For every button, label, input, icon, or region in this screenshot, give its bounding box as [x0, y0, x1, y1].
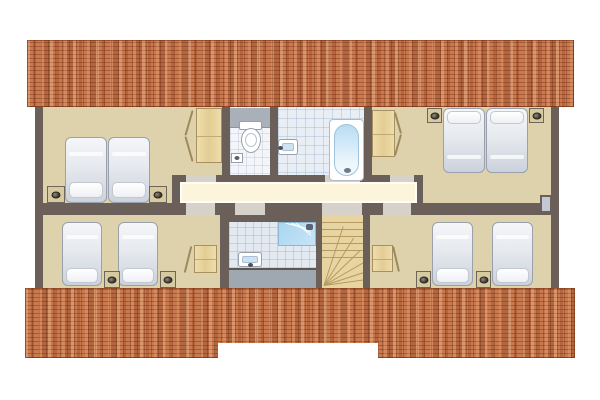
- room-hallway: [180, 182, 417, 203]
- pillow: [436, 268, 469, 283]
- nightstand: [160, 271, 176, 288]
- wardrobe-shelf: [195, 259, 216, 260]
- wardrobe: [194, 245, 217, 273]
- roof-top: [27, 40, 574, 107]
- wardrobe: [372, 245, 393, 272]
- pillow: [69, 182, 103, 198]
- nightstand: [476, 271, 491, 288]
- bed-sheet-fold: [112, 152, 146, 156]
- bathtub-drain: [344, 168, 351, 173]
- shower-head-icon: [306, 224, 313, 230]
- pillow: [112, 182, 146, 198]
- stair-tread: [322, 236, 363, 237]
- floor-plan: [0, 0, 600, 400]
- opening-staircase: [322, 203, 362, 215]
- door-shower-room: [235, 203, 265, 215]
- pillow: [447, 111, 481, 124]
- wardrobe: [196, 108, 222, 163]
- stair-tread: [322, 222, 363, 223]
- washbasin: [278, 139, 298, 155]
- bed-sheet-fold: [69, 152, 103, 156]
- wardrobe-shelf: [197, 136, 221, 137]
- wardrobe-shelf: [373, 134, 394, 135]
- nightstand: [416, 271, 431, 288]
- stair-tread: [322, 257, 363, 258]
- shower-room-ledge: [229, 268, 316, 288]
- bed-sheet-fold: [496, 235, 529, 239]
- bed-sheet-fold: [490, 155, 524, 159]
- nightstand: [47, 186, 65, 203]
- door-bedroom-top-left: [186, 175, 216, 182]
- pillow: [490, 111, 524, 124]
- pillow: [66, 268, 98, 283]
- bed-sheet-fold: [436, 235, 469, 239]
- door-bedroom-bottom-left: [186, 203, 215, 215]
- shower: [278, 222, 316, 246]
- corridor-left-wall: [172, 175, 180, 215]
- stair-winder: [324, 238, 355, 286]
- bathtub: [329, 119, 364, 181]
- flue-box: [540, 195, 552, 213]
- lamp-knob: [532, 112, 541, 119]
- bed-sheet-fold: [122, 235, 154, 239]
- lamp-knob: [52, 191, 61, 198]
- toilet-roll: [235, 156, 240, 160]
- lamp-knob: [479, 276, 488, 283]
- washbasin-bowl: [282, 143, 294, 151]
- lamp-knob: [430, 112, 439, 119]
- nightstand: [529, 108, 544, 123]
- toilet-roll-holder: [231, 153, 243, 163]
- lamp-knob: [154, 191, 163, 198]
- washbasin-bowl: [242, 256, 258, 263]
- toilet-bowl-inner: [245, 133, 257, 147]
- roof-bottom: [25, 288, 575, 358]
- staircase: [322, 215, 363, 288]
- wardrobe-shelf: [373, 259, 392, 260]
- lamp-knob: [419, 276, 428, 283]
- pillow: [122, 268, 154, 283]
- lamp-knob: [108, 276, 117, 283]
- pillow: [496, 268, 529, 283]
- door-bedroom-bottom-right: [383, 203, 411, 215]
- bed-sheet-fold: [447, 155, 481, 159]
- lamp-knob: [164, 276, 173, 283]
- corridor-right-wall: [417, 175, 423, 215]
- nightstand: [104, 271, 120, 288]
- wardrobe: [372, 110, 395, 157]
- stair-tread: [322, 250, 363, 251]
- stair-tread: [322, 243, 363, 244]
- bed-sheet-fold: [66, 235, 98, 239]
- washbasin: [238, 252, 262, 267]
- nightstand: [427, 108, 442, 123]
- tap: [278, 146, 283, 150]
- door-bedroom-top-right: [390, 175, 414, 182]
- nightstand: [149, 186, 167, 203]
- tap: [248, 263, 253, 267]
